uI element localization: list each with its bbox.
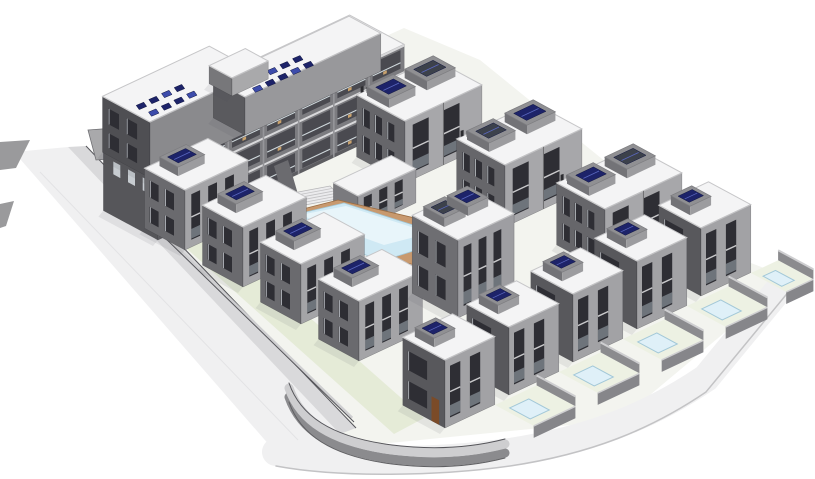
roof-vent xyxy=(361,86,364,93)
roof-vent xyxy=(461,130,464,137)
entry-wall-left-2 xyxy=(0,201,14,228)
roof-vent xyxy=(561,174,564,181)
site-model-3d xyxy=(0,0,815,479)
architectural-render xyxy=(0,0,815,479)
front-door xyxy=(432,396,440,425)
